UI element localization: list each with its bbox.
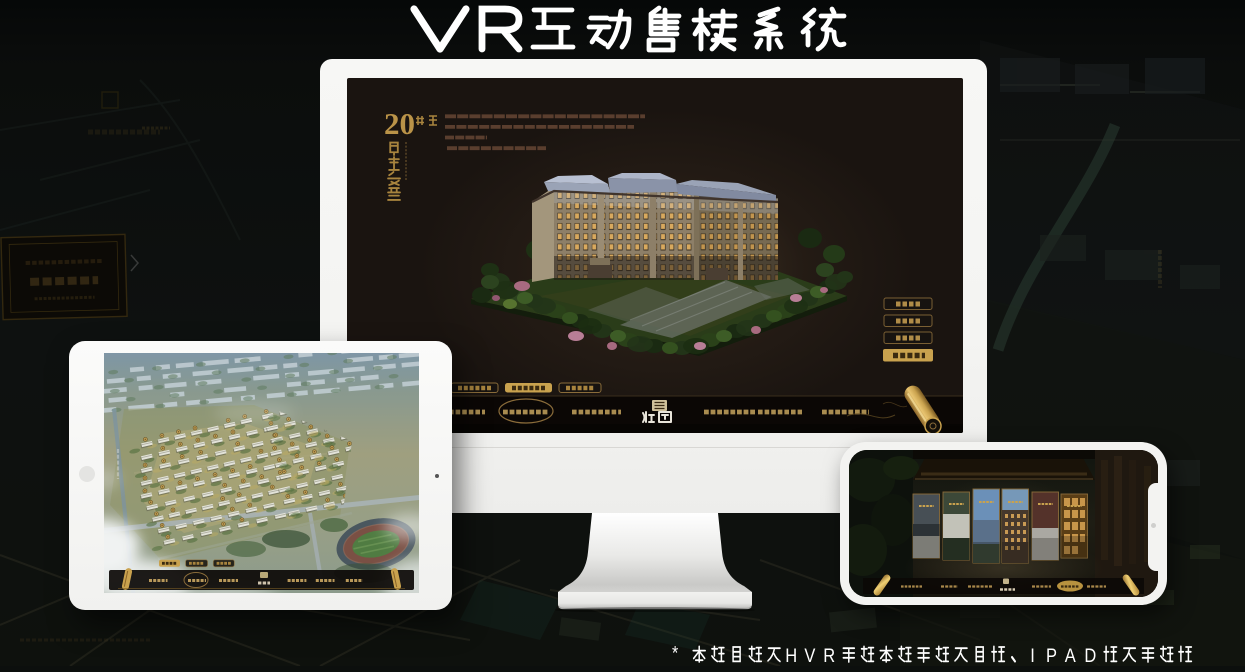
svg-text:V: V <box>804 645 816 667</box>
svg-text:20: 20 <box>384 106 415 141</box>
svg-text:R: R <box>823 645 835 667</box>
svg-text:D: D <box>1084 645 1096 667</box>
svg-text:P: P <box>1046 645 1057 667</box>
svg-text:*: * <box>672 642 678 664</box>
svg-text:H: H <box>785 645 797 667</box>
svg-text:I: I <box>1030 645 1035 667</box>
svg-text:A: A <box>1065 645 1077 667</box>
